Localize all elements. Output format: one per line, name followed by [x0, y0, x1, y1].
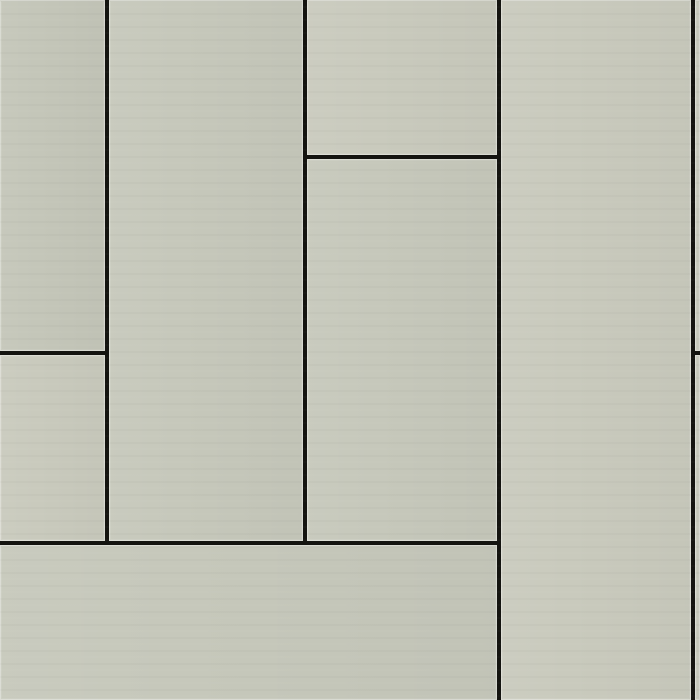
cladding-texture [0, 0, 700, 700]
panel-bottom-wide [0, 545, 497, 700]
panel-right-strip-top [695, 0, 700, 351]
panel-col3-middle [307, 159, 497, 541]
panel-left-lower [0, 355, 105, 541]
panel-col2-full [109, 0, 303, 541]
panel-col3-top [307, 0, 497, 155]
panel-right-strip-lower [695, 355, 700, 700]
panel-col4-full-height [501, 0, 691, 700]
panel-left-top [0, 0, 105, 351]
